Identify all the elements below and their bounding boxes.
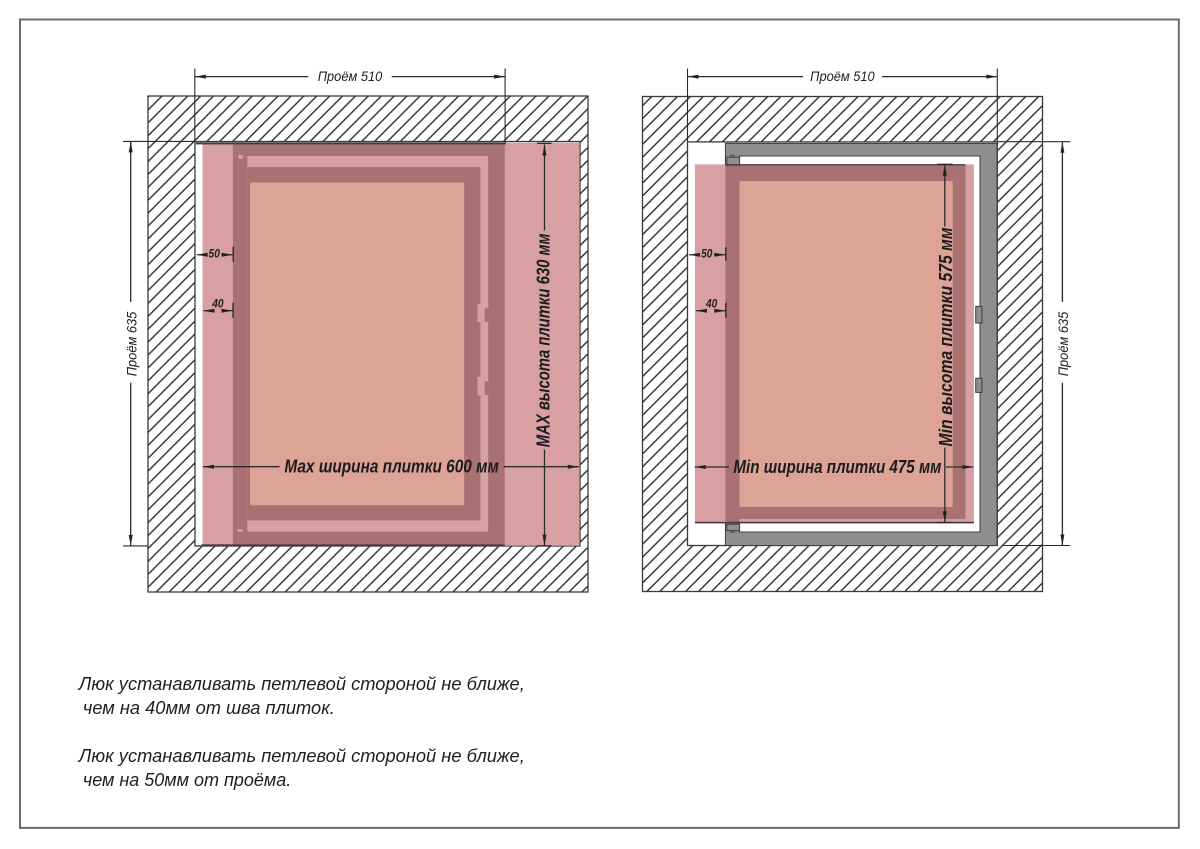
svg-text:Мах ширина плитки 600 мм: Мах ширина плитки 600 мм [284,457,499,477]
svg-text:Люк устанавливать петлевой сто: Люк устанавливать петлевой стороной не б… [78,746,525,766]
svg-text:Мin ширина плитки 475 мм: Мin ширина плитки 475 мм [733,457,941,477]
svg-text:Проём 635: Проём 635 [1056,311,1071,376]
svg-text:MAX высота плитки 630 мм: MAX высота плитки 630 мм [534,233,554,447]
svg-text:чем на 50мм от проёма.: чем на 50мм от проёма. [83,770,291,790]
svg-text:Проём 635: Проём 635 [125,311,140,376]
svg-text:40: 40 [211,299,224,311]
svg-text:Min высота плитки 575 мм: Min высота плитки 575 мм [936,227,956,446]
svg-text:Люк устанавливать петлевой сто: Люк устанавливать петлевой стороной не б… [78,674,525,694]
svg-text:50: 50 [209,249,221,261]
svg-text:50: 50 [701,249,713,261]
svg-text:Проём 510: Проём 510 [810,69,875,84]
svg-text:40: 40 [705,299,718,311]
svg-text:чем на 40мм от шва плиток.: чем на 40мм от шва плиток. [83,698,335,718]
svg-text:Проём 510: Проём 510 [318,69,383,84]
